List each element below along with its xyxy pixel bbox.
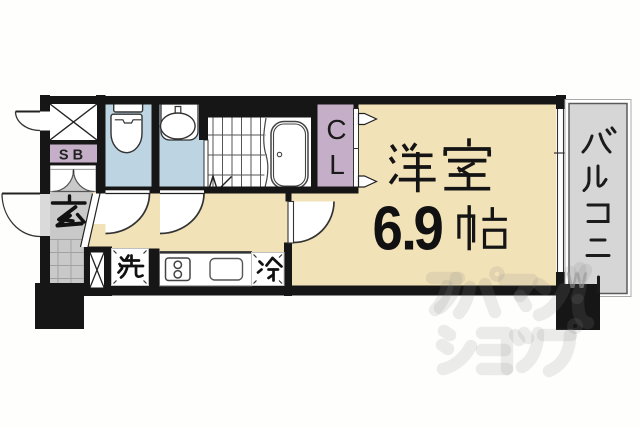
svg-text:C: C: [326, 114, 346, 145]
svg-text:9: 9: [414, 194, 444, 263]
svg-text:L: L: [329, 149, 345, 180]
svg-text:6: 6: [373, 194, 403, 263]
svg-text:SB: SB: [59, 148, 87, 164]
svg-text:W: W: [567, 268, 588, 293]
